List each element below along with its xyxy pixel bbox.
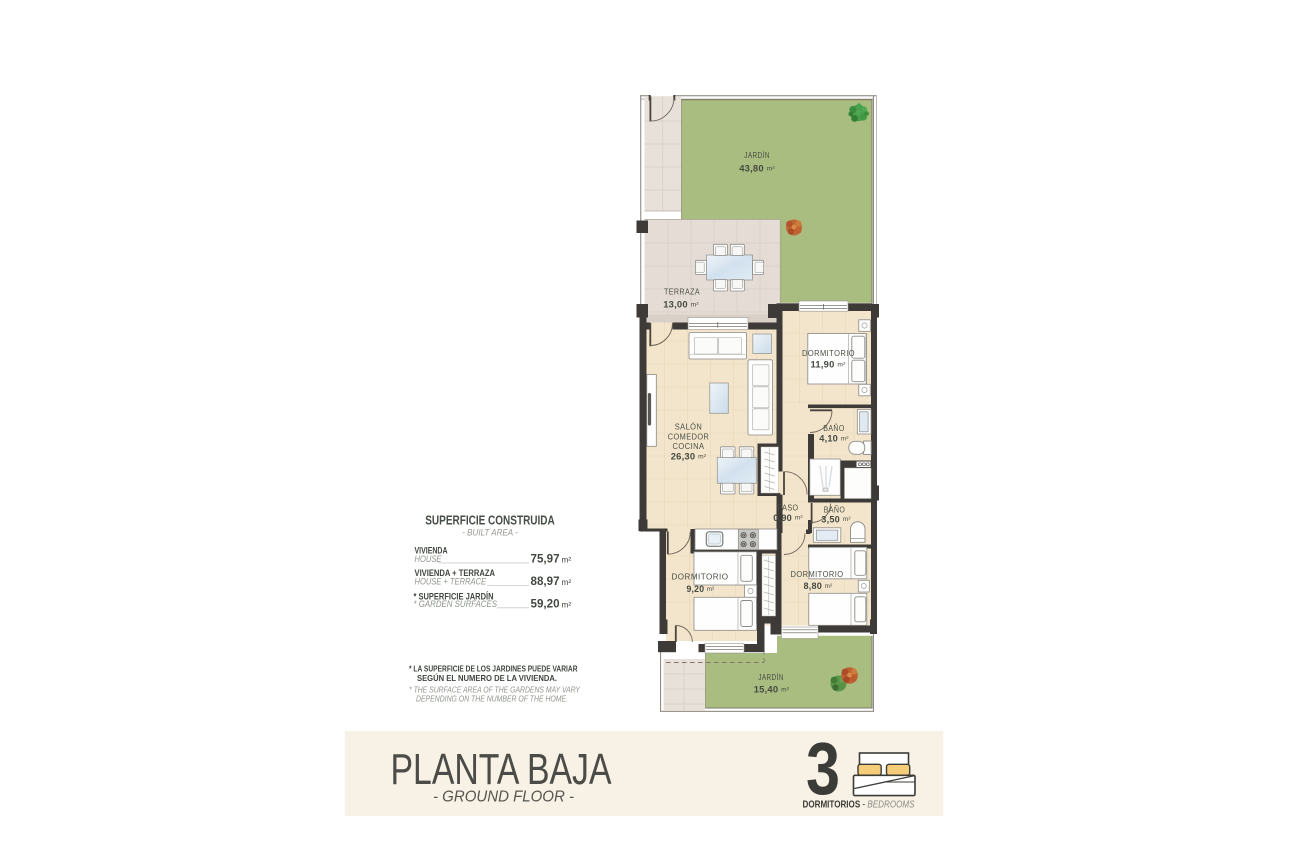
svg-text:15,40 m²: 15,40 m² (754, 685, 790, 695)
svg-text:26,30 m²: 26,30 m² (671, 452, 707, 462)
svg-text:m²: m² (562, 556, 572, 565)
svg-text:DORMITORIO: DORMITORIO (672, 573, 729, 582)
svg-text:3: 3 (806, 727, 840, 810)
svg-text:HOUSE: HOUSE (415, 553, 443, 564)
svg-text:0,90 m²: 0,90 m² (773, 513, 803, 523)
svg-text:9,20 m²: 9,20 m² (687, 584, 715, 594)
svg-text:SALÓN: SALÓN (675, 423, 703, 432)
svg-text:JARDÍN: JARDÍN (744, 151, 770, 160)
svg-text:* LA SUPERFICIE DE LOS JARDINE: * LA SUPERFICIE DE LOS JARDINES PUEDE VA… (409, 664, 578, 674)
svg-text:8,80 m²: 8,80 m² (804, 581, 833, 591)
svg-text:BAÑO: BAÑO (823, 424, 845, 433)
svg-text:DORMITORIOS - BEDROOMS: DORMITORIOS - BEDROOMS (803, 800, 915, 811)
svg-text:DORMITORIO: DORMITORIO (791, 570, 844, 579)
svg-text:TERRAZA: TERRAZA (664, 288, 700, 297)
svg-text:PASO: PASO (778, 504, 799, 513)
svg-text:4,10 m²: 4,10 m² (819, 434, 849, 444)
svg-text:75,97: 75,97 (531, 553, 560, 566)
svg-text:m²: m² (562, 578, 572, 587)
svg-text:SUPERFICIE CONSTRUIDA: SUPERFICIE CONSTRUIDA (425, 513, 555, 528)
svg-text:JARDÍN: JARDÍN (758, 673, 784, 682)
svg-text:COMEDOR: COMEDOR (668, 433, 710, 442)
svg-text:43,80 m²: 43,80 m² (739, 164, 775, 174)
svg-text:88,97: 88,97 (531, 575, 560, 588)
svg-text:- GROUND FLOOR -: - GROUND FLOOR - (433, 789, 574, 806)
svg-text:3,50 m²: 3,50 m² (821, 514, 851, 524)
svg-text:BAÑO: BAÑO (824, 506, 846, 515)
svg-text:PLANTA BAJA: PLANTA BAJA (391, 745, 612, 794)
svg-text:DEPENDING ON THE NUMBER OF THE: DEPENDING ON THE NUMBER OF THE HOME. (416, 694, 568, 704)
svg-text:m²: m² (562, 600, 572, 609)
svg-text:HOUSE + TERRACE: HOUSE + TERRACE (415, 576, 487, 587)
svg-text:11,90 m²: 11,90 m² (811, 360, 846, 370)
svg-text:- BUILT AREA -: - BUILT AREA - (462, 528, 518, 538)
svg-text:SEGÚN EL NUMERO DE LA VIVIENDA: SEGÚN EL NUMERO DE LA VIVIENDA. (417, 672, 557, 683)
svg-text:COCINA: COCINA (673, 442, 705, 451)
svg-text:59,20: 59,20 (531, 597, 560, 610)
svg-text:* GARDEN SURFACES: * GARDEN SURFACES (414, 598, 498, 609)
svg-text:13,00 m²: 13,00 m² (663, 300, 699, 310)
svg-text:DORMITORIO: DORMITORIO (802, 349, 855, 358)
